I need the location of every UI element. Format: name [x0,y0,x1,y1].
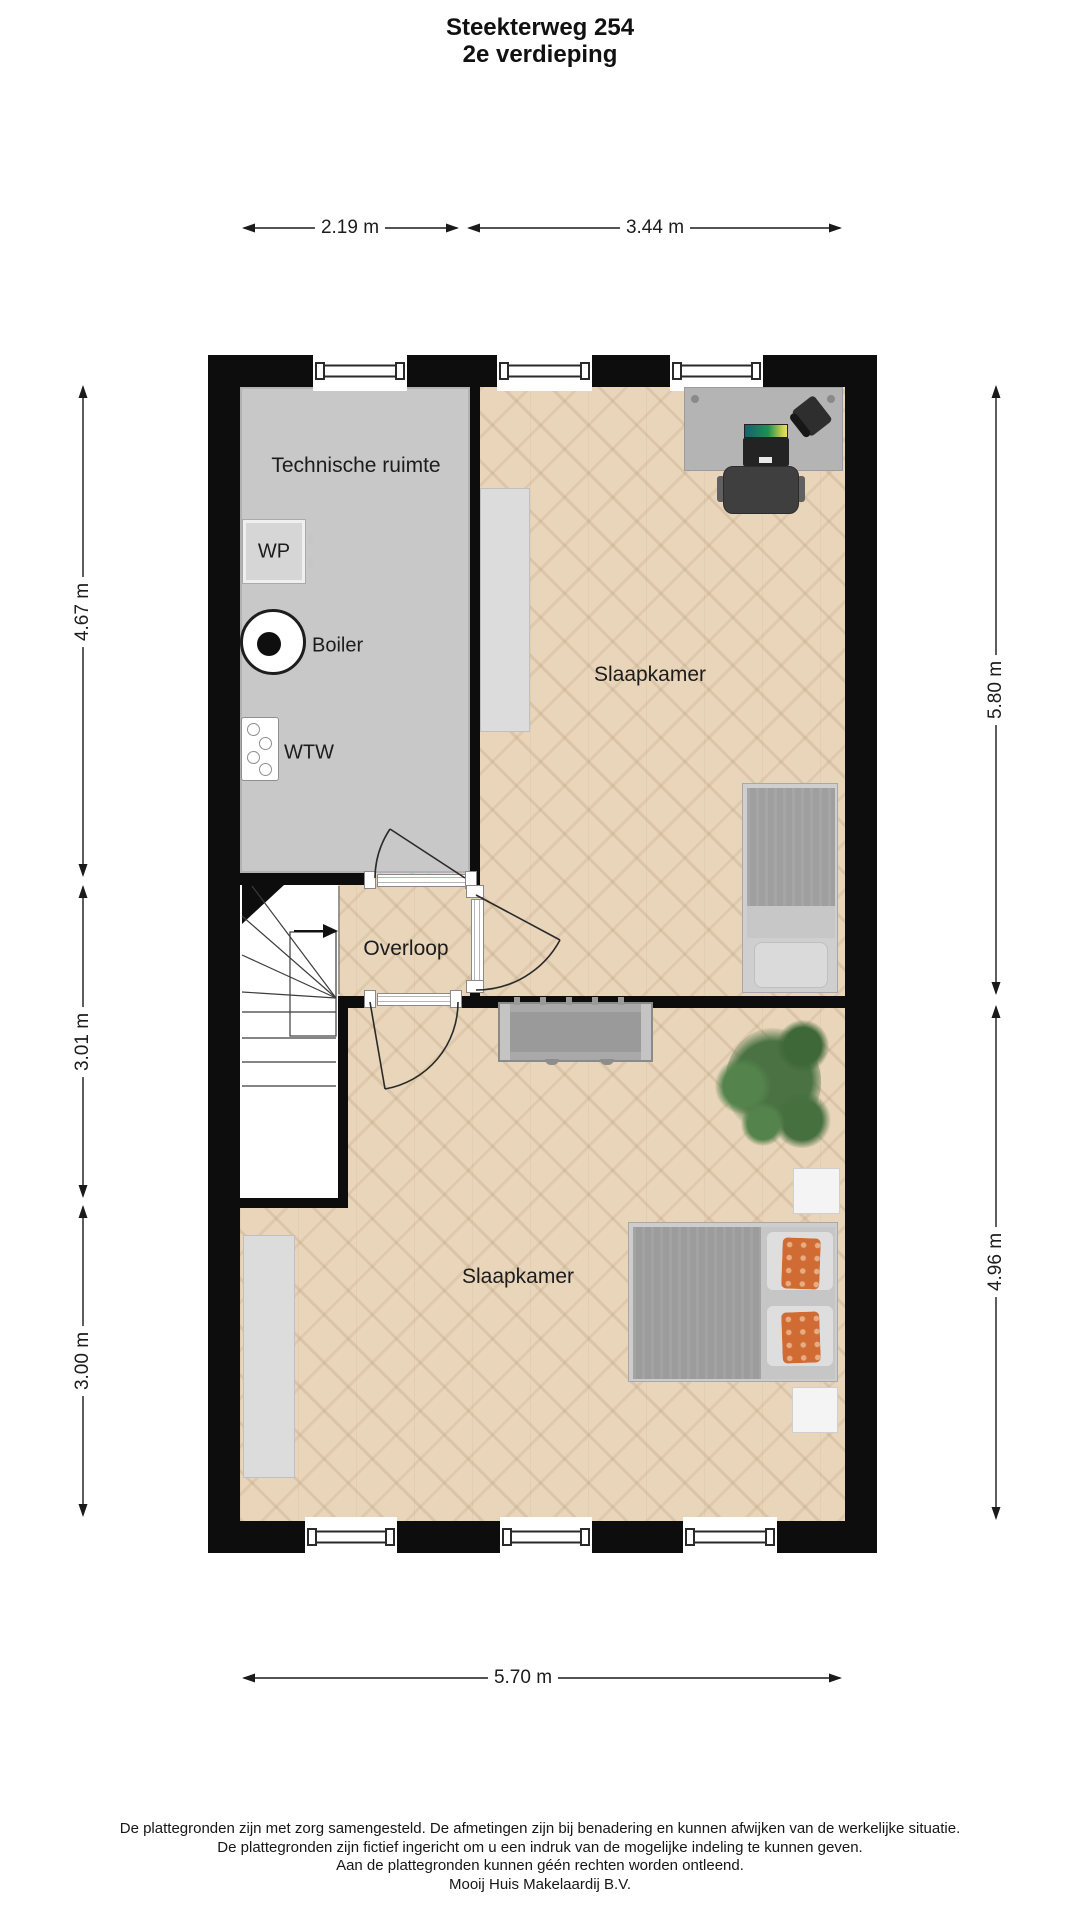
heat-recovery-vent [247,751,260,764]
window-glazing [509,1531,583,1544]
window-top-3 [670,351,763,391]
window-frame-cap [580,362,590,380]
window-glazing [692,1531,768,1544]
radiator-knob [592,997,598,1005]
door-frame-notch [364,990,376,1008]
laptop-touchpad [759,457,772,463]
heat-recovery-vent [247,723,260,736]
radiator-cap [641,1004,651,1060]
boiler-center-dot [257,632,281,656]
window-glazing [322,365,398,378]
wardrobe-bottom-bedroom [243,1235,295,1478]
boiler-label: Boiler [312,635,363,658]
wall-divider-vertical-top [470,387,480,890]
dimension-right-top: 5.80 m [985,655,1007,725]
bedroom-bottom-label: Slaapkamer [462,1265,574,1289]
single-bed-sheet-fold [747,906,835,938]
window-frame-cap [307,1528,317,1546]
door-frame-notch [466,885,484,898]
stairwell-floor [240,885,338,1198]
dimension-top-left: 2.19 m [315,217,385,239]
radiator-knob [618,997,624,1005]
disclaimer-line-3: Aan de plattegronden kunnen géén rechten… [0,1857,1080,1876]
desk-grommet [827,395,835,403]
desk-phone [791,395,833,437]
bedroom-top-label: Slaapkamer [594,663,706,687]
wardrobe-top-bedroom [480,488,530,732]
window-glazing [314,1531,388,1544]
radiator-bench [498,1002,653,1062]
double-bed [628,1222,838,1382]
desk-chair [723,466,799,514]
window-bottom-2 [500,1517,592,1557]
window-frame-cap [580,1528,590,1546]
dimension-left-bottom: 3.00 m [72,1326,94,1396]
window-frame-cap [385,1528,395,1546]
landing-label: Overloop [363,937,448,961]
dimension-right-bottom: 4.96 m [985,1227,1007,1297]
heat-recovery-vent [259,737,272,750]
window-top-1 [313,351,407,391]
page-title: Steekterweg 254 2e verdieping [0,14,1080,68]
door-frame-notch [450,990,462,1008]
plant-foliage [777,1020,829,1072]
orange-pillow [781,1237,821,1289]
floorplan-page: Steekterweg 254 2e verdieping [0,0,1080,1920]
phone-handset [788,412,812,439]
chair-seat [723,466,799,514]
window-frame-cap [499,362,509,380]
window-glazing [506,365,583,378]
desk-grommet [691,395,699,403]
heat-recovery-label: WTW [284,742,334,765]
disclaimer-line-4: Mooij Huis Makelaardij B.V. [0,1876,1080,1895]
window-frame-cap [315,362,325,380]
nightstand-bottom [792,1387,838,1433]
plant-foliage [741,1102,785,1146]
laptop-screen [744,424,788,438]
window-glazing [679,365,754,378]
heat-pump-tab [308,534,313,544]
double-bed-duvet [633,1227,761,1379]
bedroom-top-door [471,899,484,981]
window-top-2 [497,351,592,391]
window-frame-cap [502,1528,512,1546]
radiator-knob [566,997,572,1005]
radiator-knob [514,997,520,1005]
radiator-knob [540,997,546,1005]
heat-recovery-vent [259,763,272,776]
title-address: Steekterweg 254 [0,14,1080,41]
heat-pump-label: WP [258,541,290,564]
wall-stairwell-right [338,996,348,1207]
dimension-top-right: 3.44 m [620,217,690,239]
radiator-cap [500,1004,510,1060]
plant [715,1020,835,1150]
door-frame-notch [466,980,484,993]
dimension-left-top: 4.67 m [72,577,94,647]
dimension-left-middle: 3.01 m [72,1007,94,1077]
window-frame-cap [751,362,761,380]
bedroom-bottom-door [377,993,451,1006]
single-bed-pillow [754,942,828,988]
disclaimer-line-2: De plattegronden zijn fictief ingericht … [0,1839,1080,1858]
disclaimer: De plattegronden zijn met zorg samengest… [0,1820,1080,1894]
boiler-unit [240,609,306,675]
disclaimer-line-1: De plattegronden zijn met zorg samengest… [0,1820,1080,1839]
door-frame-notch [364,871,376,889]
window-frame-cap [765,1528,775,1546]
desk [684,387,843,471]
technical-room-door [377,874,466,887]
nightstand-top [793,1168,840,1214]
radiator-panel [508,1012,643,1052]
wall-stairwell-bottom [240,1198,348,1208]
wall-technical-room-bottom [240,873,366,885]
window-frame-cap [395,362,405,380]
window-bottom-1 [305,1517,397,1557]
heat-pump-tab [308,558,313,568]
title-floor: 2e verdieping [0,41,1080,68]
laptop-base [743,438,789,466]
dimension-bottom: 5.70 m [488,1667,558,1689]
window-frame-cap [685,1528,695,1546]
window-frame-cap [672,362,682,380]
heat-recovery-unit [241,717,279,781]
orange-pillow [781,1311,821,1363]
single-bed [742,783,838,993]
technical-room-label: Technische ruimte [271,454,440,478]
window-bottom-3 [683,1517,777,1557]
